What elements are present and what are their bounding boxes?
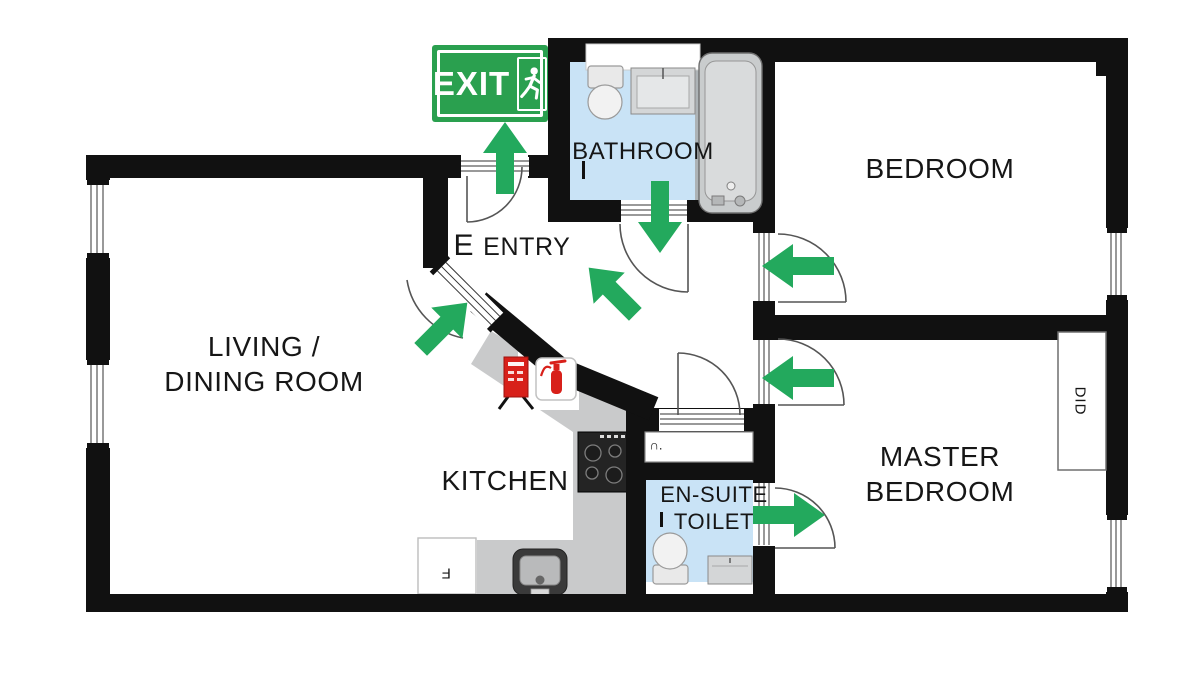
ensuite-sink xyxy=(708,556,752,584)
exit-sign-label: EXIT xyxy=(433,67,510,100)
hall-cupboard-label: ∩. xyxy=(650,438,663,453)
cooktop xyxy=(578,432,634,492)
wardrobe-label: DID xyxy=(1072,387,1089,416)
exit-sign-frame: EXIT xyxy=(437,50,543,117)
entry-label: E ENTRY xyxy=(454,229,571,263)
fire-extinguisher-icon xyxy=(536,358,576,400)
bathtub xyxy=(699,53,762,213)
kitchen-label: KITCHEN xyxy=(441,465,568,497)
running-man-icon xyxy=(517,57,547,111)
arrow-hall-northwest xyxy=(573,252,651,330)
master-bedroom-window xyxy=(1106,515,1128,592)
ensuite-line1: EN-SUITE xyxy=(660,481,767,508)
exit-sign: EXIT xyxy=(432,45,548,122)
master-bedroom-line2: BEDROOM xyxy=(866,474,1015,509)
bathroom-wall-tick xyxy=(582,161,585,179)
fridge-label: F xyxy=(441,565,451,582)
bedroom-label: BEDROOM xyxy=(866,153,1015,185)
living-window-1 xyxy=(86,180,110,258)
kitchen-sink xyxy=(513,549,567,595)
bathroom-sink xyxy=(631,68,695,114)
entry-label-text: ENTRY xyxy=(483,233,570,262)
master-bedroom-label: MASTER BEDROOM xyxy=(866,439,1015,509)
ensuite-toilet xyxy=(653,533,688,584)
living-dining-label: LIVING / DINING ROOM xyxy=(164,329,363,399)
hall-sliding-door xyxy=(654,408,749,432)
bedroom-window xyxy=(1106,228,1128,300)
ensuite-line2: TOILET xyxy=(660,508,767,535)
entry-marker: E xyxy=(454,229,475,263)
bathroom-label: BATHROOM xyxy=(572,138,714,166)
hall-door-arc xyxy=(678,353,740,415)
living-window-2 xyxy=(86,360,110,448)
ensuite-label: EN-SUITE TOILET xyxy=(660,481,767,535)
floor-plan: EXIT BATHROOM BEDROOM E ENTRY LIVING / D… xyxy=(0,0,1200,675)
master-bedroom-line1: MASTER xyxy=(866,439,1015,474)
living-dining-line1: LIVING / xyxy=(164,329,363,364)
ensuite-wall-tick xyxy=(660,512,663,527)
fire-point-sign-icon xyxy=(499,357,533,409)
living-dining-line2: DINING ROOM xyxy=(164,364,363,399)
bathroom-toilet xyxy=(588,66,623,119)
